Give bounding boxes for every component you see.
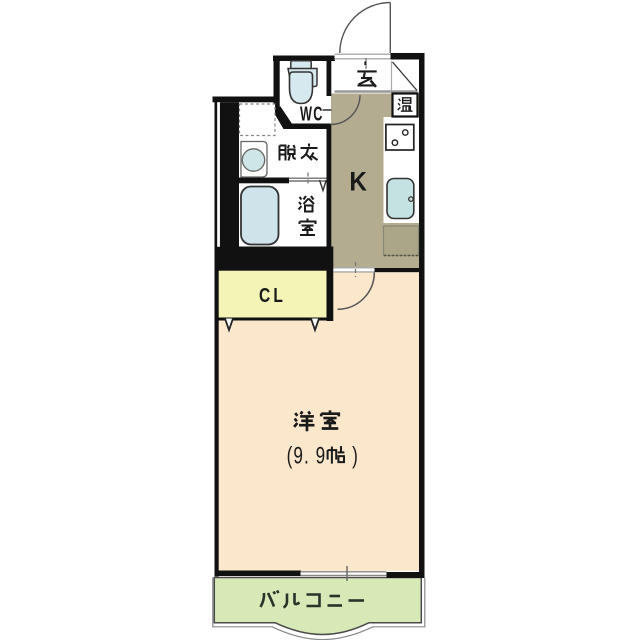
svg-text:CL: CL xyxy=(259,284,286,306)
svg-text:K: K xyxy=(349,167,367,196)
svg-text:): ) xyxy=(352,443,358,470)
svg-text:(9. 9: (9. 9 xyxy=(287,443,327,470)
svg-text:WC: WC xyxy=(300,102,324,125)
